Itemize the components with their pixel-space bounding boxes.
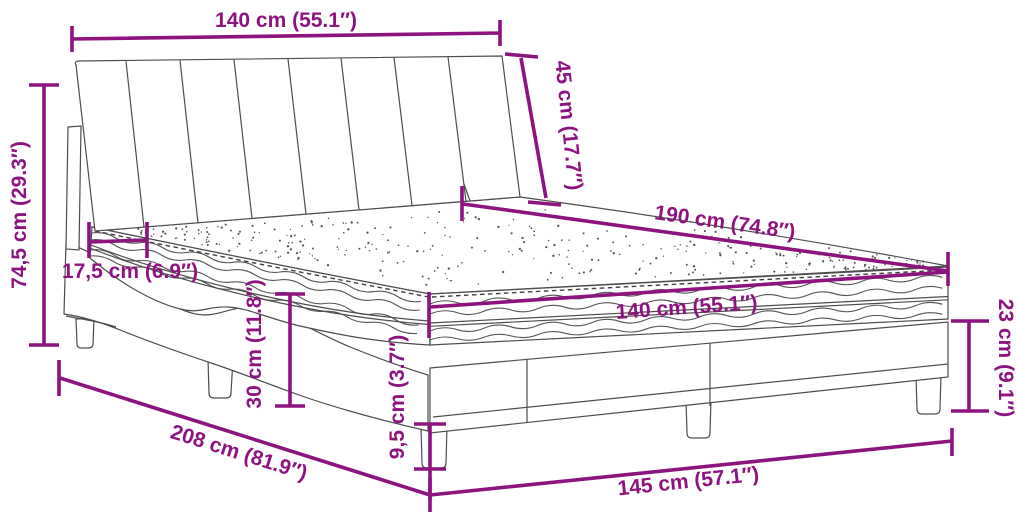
stipple-dot [750,266,752,268]
stipple-dot [786,267,787,268]
stipple-dot [366,231,368,233]
stipple-dot [842,259,844,261]
stipple-dot [553,244,555,246]
stipple-dot [583,271,585,273]
dimension-mattress-thickness-label: 17,5 cm (6.9″) [62,260,198,283]
stipple-dot [476,237,478,239]
stipple-dot [719,252,721,254]
stipple-dot [238,233,240,235]
stipple-dot [808,263,809,264]
stipple-dot [238,243,240,245]
stipple-dot [201,244,202,245]
stipple-dot [629,245,631,247]
diagram-canvas: 140 cm (55.1″) 45 cm (17.7″) 74,5 cm (29… [0,0,1016,514]
stipple-dot [232,237,233,238]
stipple-dot [259,232,260,233]
stipple-dot [484,250,486,252]
stipple-dot [259,253,261,255]
stipple-dot [265,250,267,252]
stipple-dot [208,241,210,243]
stipple-dot [141,230,143,232]
stipple-dot [438,211,440,213]
stipple-dot [822,260,824,262]
stipple-dot [207,236,209,238]
stipple-dot [207,244,209,246]
dimension-headboard-width: 140 cm (55.1″) [72,9,500,52]
stipple-dot [733,263,735,265]
leg-foot-right [916,375,941,414]
stipple-dot [719,272,721,274]
stipple-dot [850,250,852,252]
stipple-dot [619,254,621,256]
stipple-dot [186,231,188,233]
stipple-dot [642,244,644,246]
stipple-dot [398,245,400,247]
stipple-dot [894,257,895,258]
leg-head-left [76,318,94,348]
stipple-dot [206,241,208,243]
stipple-dot [457,265,459,267]
stipple-dot [558,254,560,256]
stipple-dot [388,251,390,253]
stipple-dot [275,251,277,253]
stipple-dot [793,271,795,273]
stipple-dot [523,241,525,243]
stipple-dot [312,224,314,226]
stipple-dot [478,218,480,220]
stipple-dot [655,276,656,277]
stipple-dot [442,255,443,256]
stipple-dot [461,262,463,264]
stipple-dot [844,268,845,269]
stipple-dot [568,239,570,241]
stipple-dot [730,247,732,249]
stipple-dot [328,218,330,220]
stipple-dot [847,268,849,270]
stipple-dot [230,230,232,232]
stipple-dot [310,220,312,222]
stipple-dot [327,264,329,266]
stipple-dot [557,225,559,227]
stipple-dot [343,222,345,224]
stipple-dot [874,257,876,259]
stipple-dot [300,241,301,242]
stipple-dot [206,231,208,233]
stipple-dot [382,234,383,235]
stipple-dot [387,240,388,241]
stipple-dot [521,237,523,239]
stipple-dot [865,269,867,271]
stipple-dot [612,241,614,243]
stipple-dot [185,226,187,228]
stipple-dot [175,238,176,239]
stipple-dot [312,248,314,250]
stipple-dot [512,254,513,255]
stipple-dot [685,251,686,252]
stipple-dot [237,246,238,247]
stipple-dot [888,257,890,259]
stipple-dot [365,246,367,248]
stipple-dot [422,276,424,278]
stipple-dot [753,260,755,262]
stipple-dot [845,268,847,270]
stipple-dot [291,242,293,244]
stipple-dot [297,257,299,259]
stipple-dot [451,280,452,281]
stipple-dot [444,235,445,236]
stipple-dot [513,219,515,221]
stipple-dot [688,274,690,276]
stipple-dot [387,252,389,254]
stipple-dot [545,209,546,210]
stipple-dot [830,260,832,262]
stipple-dot [511,232,513,234]
dimension-overall-height: 74,5 cm (29.3″) [8,85,59,345]
stipple-dot [760,248,762,250]
stipple-dot [201,231,202,232]
stipple-dot [586,245,588,247]
stipple-dot [829,257,831,259]
stipple-dot [785,262,787,264]
stipple-dot [208,233,210,235]
stipple-dot [430,249,431,250]
stipple-dot [694,269,696,271]
stipple-dot [872,255,874,257]
stipple-dot [728,237,730,239]
stipple-dot [583,251,584,252]
stipple-dot [775,252,776,253]
stipple-dot [280,256,281,257]
stipple-dot [286,235,287,236]
stipple-dot [389,226,391,228]
stipple-dot [301,225,303,227]
stipple-dot [448,267,450,269]
stipple-dot [345,223,346,224]
stipple-dot [290,248,292,250]
stipple-dot [550,272,552,274]
stipple-dot [449,280,450,281]
stipple-dot [175,227,177,229]
stipple-dot [519,248,521,250]
stipple-dot [264,222,266,224]
stipple-dot [680,244,682,246]
stipple-dot [693,244,695,246]
dimension-leg-height-label: 9,5 cm (3.7″) [386,335,409,459]
stipple-dot [471,247,473,249]
stipple-dot [545,246,547,248]
stipple-dot [294,234,296,236]
stipple-dot [449,236,451,238]
stipple-dot [176,237,178,239]
stipple-dot [674,246,676,248]
stipple-dot [705,252,706,253]
stipple-dot [216,243,218,245]
stipple-dot [239,231,241,233]
stipple-dot [589,271,591,273]
stipple-dot [832,260,833,261]
stipple-dot [397,262,399,264]
stipple-dot [839,259,841,261]
stipple-dot [916,261,918,263]
stipple-dot [141,233,143,235]
stipple-dot [346,250,347,251]
stipple-dot [591,259,593,261]
stipple-dot [351,221,353,223]
stipple-dot [287,245,289,247]
stipple-dot [358,248,360,250]
stipple-dot [561,239,563,241]
stipple-dot [379,269,381,271]
stipple-dot [290,235,292,237]
stipple-dot [198,229,200,231]
stipple-dot [783,255,785,257]
stipple-dot [437,222,438,223]
stipple-dot [382,260,384,262]
stipple-dot [463,221,464,222]
stipple-dot [274,228,276,230]
stipple-dot [732,261,734,263]
stipple-dot [864,266,866,268]
stipple-dot [868,267,870,269]
stipple-dot [828,247,830,249]
stipple-dot [613,252,615,254]
stipple-dot [692,271,694,273]
stipple-dot [571,267,573,269]
stipple-dot [639,268,641,270]
stipple-dot [278,256,280,258]
stipple-dot [347,228,349,230]
stipple-dot [873,266,875,268]
stipple-dot [497,226,499,228]
stipple-dot [677,249,678,250]
stipple-dot [225,224,227,226]
stipple-dot [743,272,744,273]
stipple-dot [784,271,786,273]
stipple-dot [153,234,154,235]
stipple-dot [660,248,662,250]
stipple-dot [735,251,737,253]
stipple-dot [590,269,592,271]
stipple-dot [853,266,855,268]
stipple-dot [290,229,291,230]
stipple-dot [251,240,253,242]
stipple-dot [502,271,504,273]
dimension-overall-height-label: 74,5 cm (29.3″) [8,141,31,289]
stipple-dot [407,245,409,247]
stipple-dot [625,235,627,237]
stipple-dot [206,227,208,229]
stipple-dot [374,227,376,229]
stipple-dot [578,272,580,274]
stipple-dot [437,267,439,269]
stipple-dot [336,246,338,248]
stipple-dot [566,256,567,257]
stipple-dot [533,258,534,259]
stipple-dot [568,250,570,252]
stipple-dot [663,256,664,257]
stipple-dot [425,284,427,286]
stipple-dot [221,227,223,229]
stipple-dot [478,283,479,284]
stipple-dot [917,263,918,264]
stipple-dot [316,259,318,261]
dimension-frame-height-label: 30 cm (11.8″) [243,279,266,408]
stipple-dot [427,217,428,218]
stipple-dot [198,233,200,235]
stipple-dot [606,230,608,232]
stipple-dot [369,250,370,251]
stipple-dot [773,271,775,273]
stipple-dot [184,234,186,236]
stipple-dot [343,232,345,234]
stipple-dot [228,250,230,252]
stipple-dot [568,263,570,265]
stipple-dot [876,254,878,256]
stipple-dot [161,235,163,237]
stipple-dot [548,240,550,242]
stipple-dot [806,269,807,270]
stipple-dot [718,242,720,244]
stipple-dot [299,251,300,252]
stipple-dot [382,275,384,277]
stipple-dot [547,279,549,281]
stipple-dot [332,224,333,225]
stipple-dot [338,249,339,250]
stipple-dot [416,250,418,252]
stipple-dot [562,277,564,279]
stipple-dot [302,244,304,246]
stipple-dot [686,245,688,247]
stipple-dot [376,248,378,250]
stipple-dot [279,240,281,242]
stipple-dot [610,250,612,252]
stipple-dot [434,270,436,272]
stipple-dot [367,242,369,244]
stipple-dot [424,232,426,234]
stipple-dot [304,239,305,240]
stipple-dot [635,273,637,275]
stipple-dot [261,252,263,254]
stipple-dot [508,251,509,252]
stipple-dot [217,226,219,228]
stipple-dot [796,256,797,257]
stipple-dot [151,236,152,237]
stipple-dot [508,225,509,226]
stipple-dot [854,262,856,264]
stipple-dot [446,278,447,279]
stipple-dot [779,254,781,256]
stipple-dot [423,250,425,252]
stipple-dot [833,265,835,267]
stipple-dot [911,259,912,260]
stipple-dot [371,244,372,245]
stipple-dot [521,250,523,252]
stipple-dot [719,254,721,256]
stipple-dot [727,245,729,247]
stipple-dot [194,238,195,239]
stipple-dot [583,232,585,234]
stipple-dot [411,217,412,218]
bed-dimension-diagram: 140 cm (55.1″) 45 cm (17.7″) 74,5 cm (29… [0,0,1016,514]
stipple-dot [287,252,289,254]
stipple-dot [403,261,405,263]
stipple-dot [530,227,532,229]
stipple-dot [296,252,298,254]
stipple-dot [703,274,705,276]
stipple-dot [309,253,310,254]
stipple-dot [445,273,446,274]
stipple-dot [249,250,251,252]
stipple-dot [164,233,166,235]
stipple-dot [428,278,430,280]
stipple-dot [689,241,691,243]
headboard-post-left [66,126,81,250]
dimension-base-and-leg-height-label: 23 cm (9.1″) [994,299,1016,418]
dimension-overall-width: 145 cm (57.1″) [430,428,952,512]
stipple-dot [686,264,688,266]
stipple-dot [670,272,672,274]
stipple-dot [693,265,695,267]
stipple-dot [432,245,434,247]
stipple-dot [919,262,920,263]
stipple-dot [206,239,207,240]
stipple-dot [475,216,477,218]
stipple-dot [251,225,253,227]
stipple-dot [344,254,346,256]
stipple-dot [597,238,599,240]
stipple-dot [533,231,535,233]
stipple-dot [219,244,220,245]
stipple-dot [922,260,924,262]
stipple-dot [357,222,359,224]
stipple-dot [162,231,164,233]
stipple-dot [643,261,644,262]
stipple-dot [598,259,600,261]
stipple-dot [338,238,339,239]
stipple-dot [464,218,465,219]
stipple-dot [254,231,256,233]
stipple-dot [876,267,878,269]
dimension-headboard-height-label: 45 cm (17.7″) [550,59,586,191]
stipple-dot [140,231,142,233]
stipple-dot [873,268,875,270]
dimension-overall-length-label: 208 cm (81.9″) [168,420,310,485]
stipple-dot [184,239,186,241]
stipple-dot [776,253,778,255]
stipple-dot [314,258,315,259]
stipple-dot [288,242,290,244]
stipple-dot [754,264,755,265]
stipple-dot [321,225,323,227]
dimension-base-and-leg-height: 23 cm (9.1″) [951,299,1016,418]
stipple-dot [444,227,446,229]
stipple-dot [892,266,893,267]
stipple-dot [529,226,530,227]
stipple-dot [650,263,652,265]
stipple-dot [552,255,554,257]
stipple-dot [153,228,155,230]
stipple-dot [833,267,834,268]
dimension-headboard-width-label: 140 cm (55.1″) [215,9,357,32]
stipple-dot [746,252,748,254]
stipple-dot [466,212,468,214]
stipple-dot [533,234,535,236]
stipple-dot [252,237,254,239]
stipple-dot [839,252,841,254]
stipple-dot [181,228,183,230]
stipple-dot [796,254,798,256]
stipple-dot [312,255,313,256]
